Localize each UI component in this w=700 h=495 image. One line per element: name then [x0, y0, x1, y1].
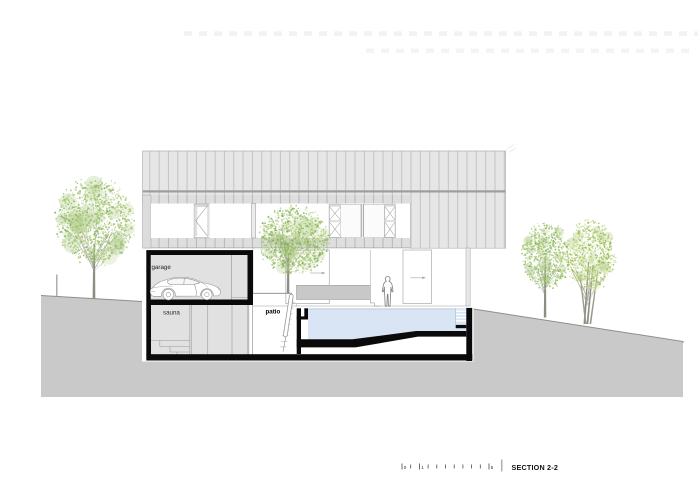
- svg-text:5: 5: [491, 465, 494, 470]
- svg-text:patio: patio: [266, 309, 281, 316]
- svg-text:SECTION 2-2: SECTION 2-2: [512, 463, 559, 472]
- svg-text:1: 1: [421, 465, 424, 470]
- svg-text:garage: garage: [152, 264, 172, 271]
- svg-text:sauna: sauna: [163, 310, 180, 317]
- svg-text:0: 0: [404, 465, 407, 470]
